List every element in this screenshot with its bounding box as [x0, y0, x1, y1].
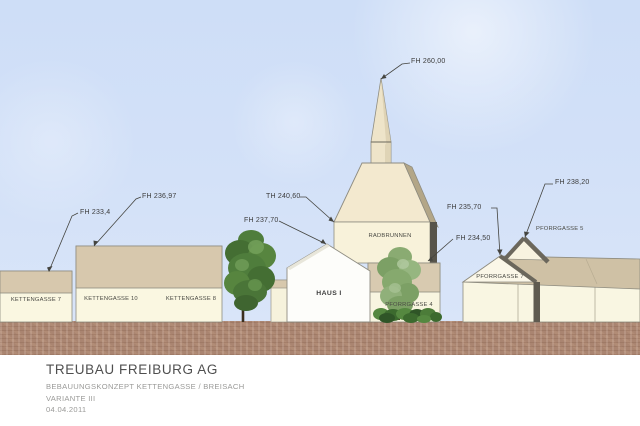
title-variant: VARIANTE III — [46, 394, 245, 403]
title-company: TREUBAU FREIBURG AG — [46, 362, 245, 377]
title-project: BEBAUUNGSKONZEPT KETTENGASSE / BREISACH — [46, 382, 245, 391]
title-date: 04.04.2011 — [46, 405, 245, 414]
label-kettengasse-10: KETTENGASSE 10 — [78, 296, 144, 302]
annotation-fh-238: FH 238,20 — [555, 179, 590, 186]
building-pforrgasse-complex — [463, 238, 640, 322]
annotation-arrowheads — [47, 74, 530, 272]
tree-left — [224, 230, 276, 322]
label-pforrgasse-5: PFORRGASSE 5 — [536, 226, 584, 232]
annotation-fh-234: FH 234,50 — [456, 235, 491, 242]
title-block: TREUBAU FREIBURG AG BEBAUUNGSKONZEPT KET… — [46, 362, 245, 417]
label-haus-1: HAUS I — [300, 290, 358, 297]
label-pforrgasse-4: PFORRGASSE 4 — [376, 302, 442, 308]
annotation-fh-236: FH 236,97 — [142, 193, 177, 200]
annotation-fh-237: FH 237,70 — [244, 217, 279, 224]
label-kettengasse-7: KETTENGASSE 7 — [0, 297, 72, 303]
label-pforrgasse-7: PFORRGASSE 7 — [468, 274, 532, 280]
building-sliver — [271, 280, 288, 322]
annotation-fh-235: FH 235,70 — [447, 204, 482, 211]
annotation-fh-233: FH 233,4 — [80, 209, 110, 216]
label-radbrunnen: RADBRUNNEN — [356, 233, 424, 239]
annotation-th-240: TH 240,60 — [266, 193, 301, 200]
annotation-fh-260: FH 260,00 — [411, 58, 446, 65]
elevation-drawing: FH 260,00 TH 240,60 FH 237,70 FH 233,4 F… — [0, 0, 640, 426]
label-kettengasse-8: KETTENGASSE 8 — [160, 296, 222, 302]
building-kettengasse-10-8 — [76, 246, 222, 322]
